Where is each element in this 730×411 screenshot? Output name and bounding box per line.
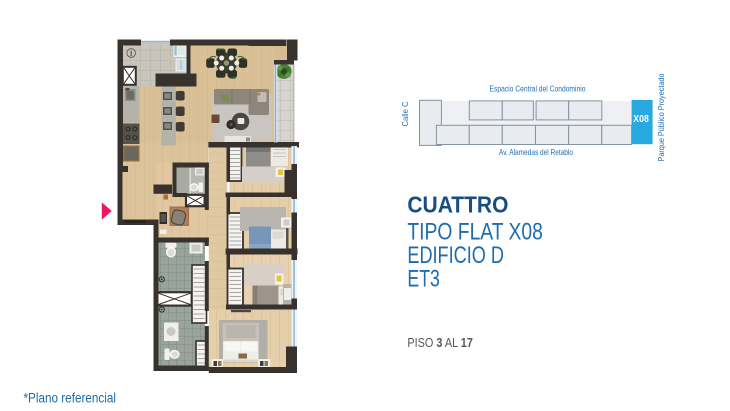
svg-text:Espacio Central del Condominio: Espacio Central del Condominio bbox=[490, 84, 586, 94]
svg-text:Av. Alamedas del Retablo: Av. Alamedas del Retablo bbox=[499, 147, 573, 157]
svg-text:Parque Público Proyectado: Parque Público Proyectado bbox=[656, 73, 666, 161]
svg-text:ET3: ET3 bbox=[407, 266, 440, 293]
svg-text:PISO 3 AL 17: PISO 3 AL 17 bbox=[407, 335, 473, 350]
svg-text:CUATTRO: CUATTRO bbox=[407, 192, 508, 218]
svg-text:X08: X08 bbox=[633, 114, 649, 125]
svg-text:*Plano referencial: *Plano referencial bbox=[24, 390, 117, 406]
svg-text:Calle C: Calle C bbox=[400, 102, 410, 127]
